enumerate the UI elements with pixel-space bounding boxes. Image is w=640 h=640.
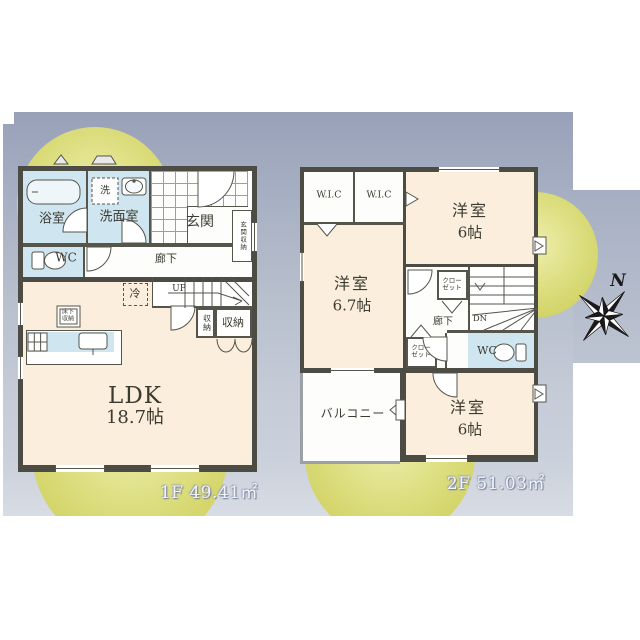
label-stairs-up: UP: [172, 284, 186, 294]
label-closet-hall: クロー ゼット: [442, 278, 462, 293]
label-closet-lower: クロー ゼット: [411, 345, 431, 360]
window: [252, 222, 257, 252]
floor1-plan: 浴室 洗面室 洗 玄関 玄関収納 WC 廊下 UP 冷 収納 収納 床下 収納 …: [18, 166, 257, 472]
band-top-notch: [0, 112, 14, 124]
closet-lower-line2: ゼット: [411, 351, 431, 359]
wall: [83, 247, 85, 277]
entrance-tile-area: [151, 171, 187, 243]
label-bedroom-left-name: 洋室: [334, 275, 370, 293]
wall: [18, 243, 252, 247]
room-bath: [23, 171, 86, 243]
wall-outer-top: [18, 166, 257, 171]
floor1-area-label: 1F 49.41㎡: [140, 478, 258, 503]
label-bedroom-bottom-size: 6帖: [458, 422, 483, 439]
label-wic-left: W.I.C: [316, 191, 341, 202]
closet-hall-line2: ゼット: [442, 284, 462, 292]
label-storage: 収納: [222, 317, 244, 329]
wall: [152, 277, 153, 308]
wall: [86, 171, 88, 243]
wall: [403, 264, 538, 267]
wall: [300, 222, 406, 225]
label-bedroom-top-size: 6帖: [458, 225, 483, 242]
label-stairs-down: DN: [473, 315, 487, 325]
floor2-plan: W.I.C W.I.C 洋室 6帖 洋室 6.7帖 クロー ゼット クロー ゼッ…: [300, 167, 538, 467]
label-bath: 浴室: [39, 213, 65, 228]
floor2-area-label: 2F 51.03㎡: [437, 469, 545, 494]
label-entrance-storage: 玄関収納: [238, 221, 245, 251]
wall: [400, 373, 406, 462]
underfloor-line2: 収納: [62, 315, 74, 322]
label-bedroom-top-name: 洋室: [452, 202, 488, 220]
label-hallway-2f: 廊下: [433, 316, 453, 327]
label-bedroom-left-size: 6.7帖: [333, 298, 372, 315]
wall: [445, 333, 447, 368]
label-hallway-1f: 廊下: [155, 253, 177, 265]
compass-rose-icon: [571, 283, 637, 349]
kitchen-worktop: [27, 332, 114, 352]
wall: [447, 330, 538, 333]
window: [438, 167, 500, 172]
label-underfloor-storage: 床下 収納: [62, 309, 74, 322]
label-wc-2f: WC: [477, 345, 497, 357]
wall-outer-bottom: [403, 455, 538, 462]
balcony-rail-bottom: [300, 461, 400, 464]
window: [330, 368, 375, 373]
porch-edge-line: [187, 206, 248, 207]
window: [18, 302, 23, 326]
wall: [149, 171, 151, 243]
label-entrance: 玄関: [186, 215, 214, 231]
wall: [468, 267, 470, 330]
window: [18, 356, 23, 380]
label-wic-right: W.I.C: [366, 191, 391, 202]
label-bedroom-bottom-name: 洋室: [450, 399, 486, 417]
wall: [18, 277, 257, 282]
label-balcony: バルコニー: [321, 407, 386, 420]
window: [55, 465, 105, 472]
balcony-rail-left: [300, 373, 303, 464]
floorplan-page: 浴室 洗面室 洗 玄関 玄関収納 WC 廊下 UP 冷 収納 収納 床下 収納 …: [0, 0, 640, 640]
wall-outer-right: [252, 166, 257, 472]
entrance-porch: [187, 171, 248, 207]
label-fridge: 冷: [130, 288, 141, 300]
room-washroom: [88, 171, 149, 243]
label-storage-small: 収納: [202, 314, 211, 332]
wall-outer-bottom: [18, 465, 257, 472]
label-washroom: 洗面室: [99, 211, 138, 226]
wall-outer-top: [300, 167, 538, 172]
label-wc-1f: WC: [55, 251, 77, 264]
window: [300, 252, 304, 282]
window: [150, 465, 200, 472]
window: [425, 455, 468, 462]
label-ldk-size: 18.7帖: [106, 408, 164, 428]
label-washer: 洗: [100, 185, 110, 196]
wall-outer-right: [534, 167, 538, 462]
wall: [353, 172, 355, 222]
